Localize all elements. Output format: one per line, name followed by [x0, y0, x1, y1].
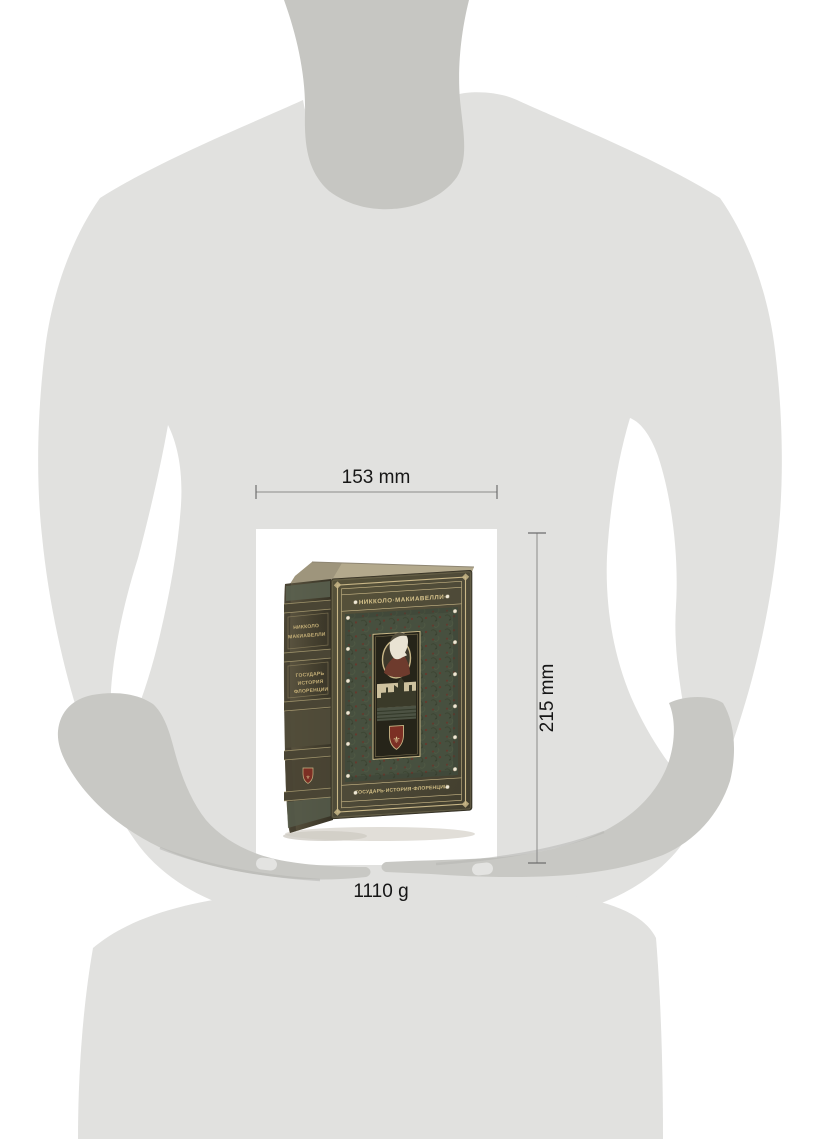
- book-shadow-dark: [283, 831, 367, 841]
- person-silhouette-lap: [78, 890, 663, 1139]
- spine-mid-panel: [285, 708, 332, 748]
- height-dimension-label: 215 mm: [537, 664, 558, 733]
- weight-label: 1110 g: [353, 881, 408, 902]
- size-comparison-illustration: НИККОЛО МАКИАВЕЛЛИ ГОСУДАРЬ ИСТОРИЯ ФЛОР…: [0, 0, 820, 1139]
- book-cover: ·НИККОЛО·МАКИАВЕЛЛИ· ·ГОСУДАРЬ·ИСТОРИЯ·Ф…: [331, 570, 472, 819]
- fleur-de-lis-glyph: ⚜: [392, 735, 400, 745]
- size-comparison-canvas: НИККОЛО МАКИАВЕЛЛИ ГОСУДАРЬ ИСТОРИЯ ФЛОР…: [0, 0, 820, 1139]
- water-stripes: [377, 706, 416, 721]
- width-dimension-label: 153 mm: [342, 467, 411, 488]
- cover-central-panel: ⚜: [373, 631, 420, 759]
- book: НИККОЛО МАКИАВЕЛЛИ ГОСУДАРЬ ИСТОРИЯ ФЛОР…: [283, 562, 475, 841]
- spine-fleur-de-lis-glyph: ⚜: [306, 775, 310, 781]
